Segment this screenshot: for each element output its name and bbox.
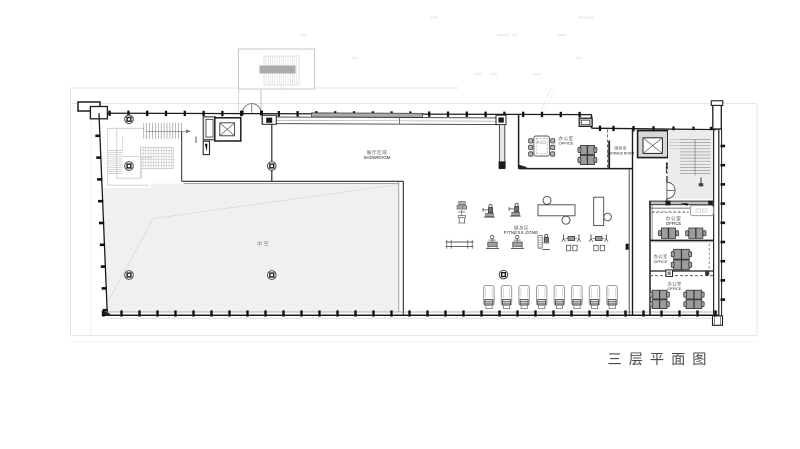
svg-text:OFFICE: OFFICE: [654, 260, 668, 264]
svg-text:OFFICE: OFFICE: [668, 287, 682, 291]
svg-text:会议区: 会议区: [536, 140, 547, 145]
svg-text:SHOWROOM: SHOWROOM: [364, 155, 391, 160]
svg-text:STORAGE ROOM: STORAGE ROOM: [607, 151, 634, 155]
svg-text:FITNESS ZONE: FITNESS ZONE: [504, 230, 539, 235]
svg-text:OFFICE: OFFICE: [559, 141, 574, 146]
svg-text:OFFICE: OFFICE: [666, 221, 682, 226]
svg-text:储物室: 储物室: [614, 146, 627, 151]
svg-text:三层平面图: 三层平面图: [608, 352, 714, 368]
svg-text:中空: 中空: [257, 239, 269, 247]
